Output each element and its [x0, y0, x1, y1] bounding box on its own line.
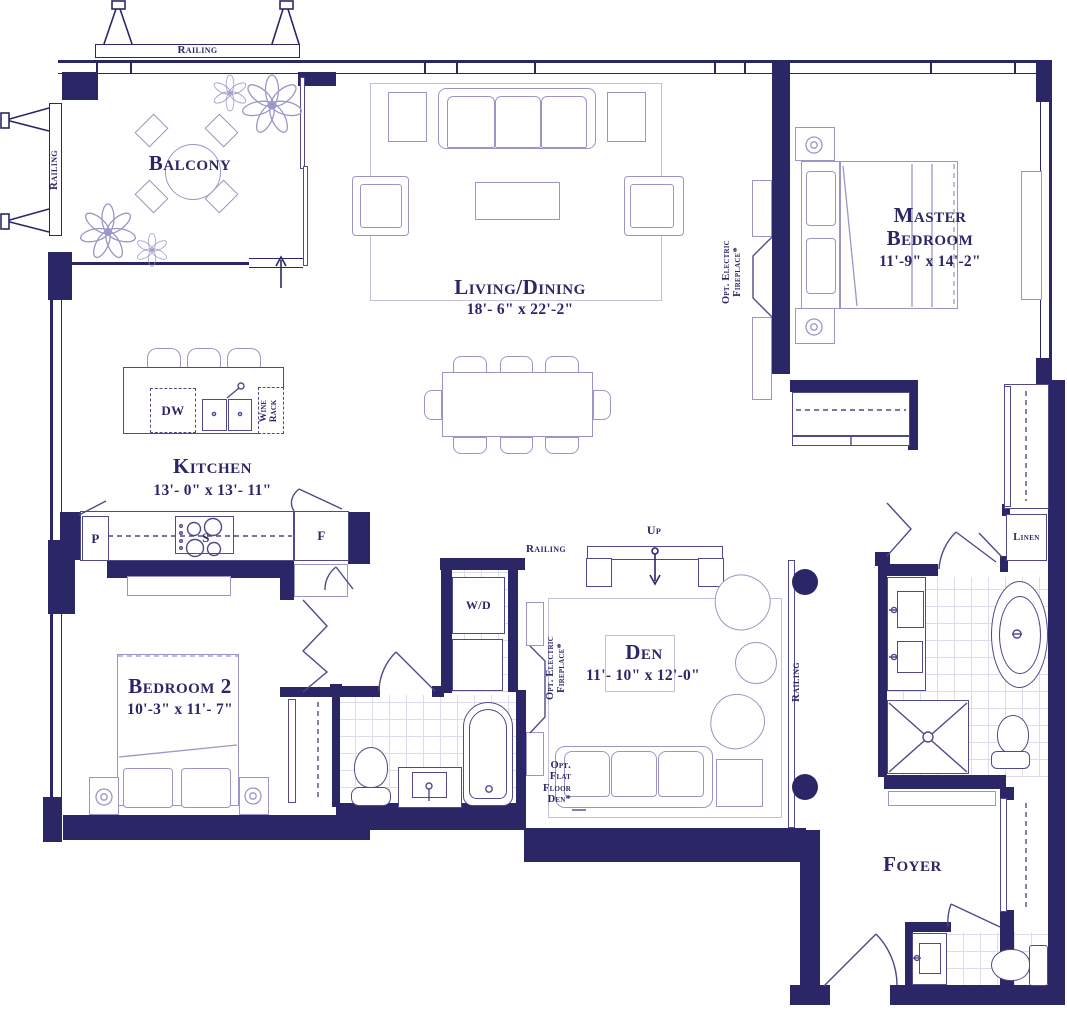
- washer-dryer-label: W/D: [452, 577, 505, 634]
- dining-chair: [593, 390, 611, 420]
- railing-support: [6, 209, 49, 232]
- vanity-sink: [897, 591, 924, 628]
- railing-support: [104, 6, 132, 44]
- wall: [884, 775, 1006, 789]
- dining-chair: [545, 356, 579, 373]
- dining-chair: [545, 437, 579, 454]
- balcony-floor-edge: [63, 262, 250, 265]
- end-table: [388, 92, 427, 142]
- kitchen-sink: [228, 399, 252, 431]
- railing-label-north: Railing: [95, 45, 300, 57]
- walk-in-closet-door: [1004, 386, 1011, 507]
- wall: [905, 922, 951, 932]
- opt-flat-floor-den-label: Opt.FlatFloorDen*: [521, 760, 571, 816]
- opt-fireplace-label-den: Opt. ElectricFireplace*: [545, 608, 569, 728]
- accordion-door: [887, 503, 911, 556]
- balcony-sliding-door: [303, 166, 308, 266]
- dresser: [127, 576, 231, 596]
- toilet-bowl: [991, 949, 1030, 981]
- nightstand: [795, 127, 835, 161]
- structural-column: [792, 774, 818, 800]
- fireplace-cabinet: [752, 180, 772, 237]
- wall: [63, 815, 370, 840]
- railing-label-den-east: Railing: [791, 647, 803, 717]
- sofa-cushion: [495, 96, 541, 148]
- dresser: [1021, 171, 1042, 300]
- window-mullion: [130, 60, 132, 73]
- toilet-base: [991, 751, 1030, 769]
- laundry-cabinet: [452, 639, 503, 691]
- toilet-base: [351, 787, 391, 806]
- room-label-den: Den: [608, 641, 680, 667]
- window-wall-west-bedroom2: [50, 612, 62, 798]
- toilet-bowl: [997, 715, 1029, 754]
- door-leaf: [396, 652, 435, 691]
- fireplace-niche: [753, 237, 772, 317]
- kitchen-sink: [202, 399, 227, 431]
- stove-label: S: [196, 531, 216, 546]
- room-label-master-bedroom: MasterBedroom: [860, 204, 1000, 252]
- window-mullion: [534, 60, 536, 73]
- toilet-bowl: [354, 747, 388, 788]
- sofa-cushion: [611, 751, 657, 797]
- railing-label-stairs: Railing: [505, 544, 587, 557]
- plant-icon: [212, 75, 247, 111]
- window-wall-north: [58, 60, 1052, 74]
- patio-chair: [135, 180, 169, 214]
- armchair-seat: [630, 184, 674, 228]
- dining-chair: [453, 356, 487, 373]
- square-side-table: [716, 759, 763, 807]
- bifold-door: [303, 600, 327, 692]
- balcony-door-threshold: [249, 258, 303, 268]
- plant-icon: [79, 204, 136, 260]
- fireplace-niche: [530, 646, 545, 733]
- foyer-console: [888, 791, 996, 806]
- wall: [790, 380, 918, 392]
- foyer-closet-door: [1000, 798, 1007, 912]
- railing-support: [112, 1, 125, 9]
- bar-stool: [227, 348, 261, 368]
- nightstand: [795, 308, 835, 344]
- door-leaf: [956, 532, 996, 562]
- coffee-table: [475, 182, 560, 220]
- powder-sink: [919, 943, 941, 974]
- bathtub-inner: [469, 709, 507, 799]
- armchair-seat: [360, 184, 402, 228]
- door-leaf: [979, 533, 1002, 557]
- opt-fireplace-label-living: Opt. ElectricFireplace*: [721, 212, 745, 332]
- wall: [107, 558, 293, 578]
- room-label-kitchen: Kitchen: [140, 455, 285, 481]
- end-table: [607, 92, 646, 142]
- railing-label-west: Railing: [49, 130, 61, 210]
- wall: [524, 828, 806, 862]
- room-dims-bedroom2: 10'-3" x 11'- 7": [100, 702, 260, 720]
- door-swing: [939, 532, 956, 569]
- room-dims-kitchen: 13'- 0" x 13'- 11": [125, 483, 300, 501]
- wall: [508, 558, 518, 692]
- pillow: [806, 171, 836, 226]
- wall: [441, 558, 452, 693]
- dining-chair: [453, 437, 487, 454]
- vanity-sink: [897, 641, 923, 673]
- soaker-tub-inner: [999, 596, 1041, 674]
- master-closet: [792, 392, 910, 436]
- wall: [800, 830, 820, 990]
- shower: [887, 700, 969, 774]
- pillow: [181, 768, 231, 808]
- patio-chair: [135, 114, 169, 148]
- stairs-up-label: Up: [640, 524, 668, 538]
- window-mullion: [1014, 60, 1016, 73]
- plant-icon: [241, 75, 302, 135]
- linen-closet-label: Linen: [1006, 514, 1047, 561]
- window-mullion: [424, 60, 426, 73]
- wall: [878, 564, 938, 576]
- door-swing: [379, 652, 396, 691]
- pillow: [806, 238, 836, 294]
- railing-support: [280, 1, 293, 9]
- pillow: [123, 768, 173, 808]
- dishwasher-label: DW: [150, 388, 196, 433]
- nightstand: [89, 777, 119, 815]
- window-wall-west-kitchen: [50, 300, 62, 540]
- wall: [890, 985, 1052, 1005]
- window-mullion: [714, 60, 716, 73]
- room-dims-master-bedroom: 11'-9" x 14'-2": [855, 254, 1005, 272]
- entry-door-swing: [876, 934, 897, 985]
- round-side-table: [735, 642, 777, 684]
- room-dims-den: 11'- 10" x 12'-0": [568, 668, 718, 686]
- entry-door-leaf: [824, 934, 876, 986]
- sofa-cushion: [541, 96, 587, 148]
- master-closet-sliding-door: [792, 436, 910, 446]
- railing-support: [6, 108, 49, 131]
- dining-chair: [424, 390, 442, 420]
- window-mullion: [744, 60, 746, 73]
- balcony-sliding-door: [300, 77, 305, 169]
- dining-table: [442, 372, 593, 437]
- dining-chair: [500, 437, 533, 454]
- fireplace-cabinet: [752, 317, 772, 400]
- room-label-foyer: Foyer: [865, 853, 960, 879]
- room-label-balcony: Balcony: [115, 152, 265, 180]
- wall: [336, 686, 380, 697]
- bar-stool: [187, 348, 221, 368]
- window-mullion: [456, 60, 458, 73]
- nightstand: [239, 777, 269, 815]
- wall: [62, 72, 98, 100]
- pantry-label: P: [82, 516, 109, 561]
- bedroom2-closet-door: [288, 699, 296, 803]
- wall: [878, 576, 887, 777]
- wall: [48, 252, 72, 300]
- railing-support: [1, 113, 9, 128]
- window-mullion: [930, 60, 932, 73]
- wall: [790, 985, 830, 1005]
- room-label-bedroom2: Bedroom 2: [105, 675, 255, 701]
- fridge-label: F: [294, 511, 349, 561]
- sofa-cushion: [447, 96, 495, 148]
- room-label-living-dining: Living/Dining: [420, 276, 620, 300]
- sofa-cushion: [658, 751, 704, 797]
- hall-closet: [294, 564, 348, 597]
- bath2-sink: [412, 772, 447, 798]
- wine-rack-label: WineRack: [259, 385, 281, 437]
- railing-support: [1, 214, 9, 229]
- fireplace-cabinet: [526, 602, 544, 646]
- room-dims-living-dining: 18'- 6" x 22'-2": [430, 302, 610, 320]
- floor-plan: Railing Railing Balcony Living/Dining 18…: [0, 0, 1067, 1012]
- wall: [332, 695, 340, 807]
- patio-chair: [205, 114, 239, 148]
- wall: [280, 687, 338, 697]
- railing-support: [272, 6, 299, 44]
- bar-stool: [147, 348, 181, 368]
- wall: [1036, 62, 1052, 102]
- structural-column: [792, 569, 818, 595]
- wall: [60, 512, 80, 560]
- stair-post: [586, 558, 612, 587]
- dining-chair: [500, 356, 533, 373]
- wall: [772, 62, 790, 374]
- wall: [43, 797, 62, 842]
- wall: [348, 512, 370, 564]
- wall: [1048, 380, 1065, 1005]
- door-leaf: [951, 904, 1000, 927]
- toilet-tank: [1029, 945, 1048, 986]
